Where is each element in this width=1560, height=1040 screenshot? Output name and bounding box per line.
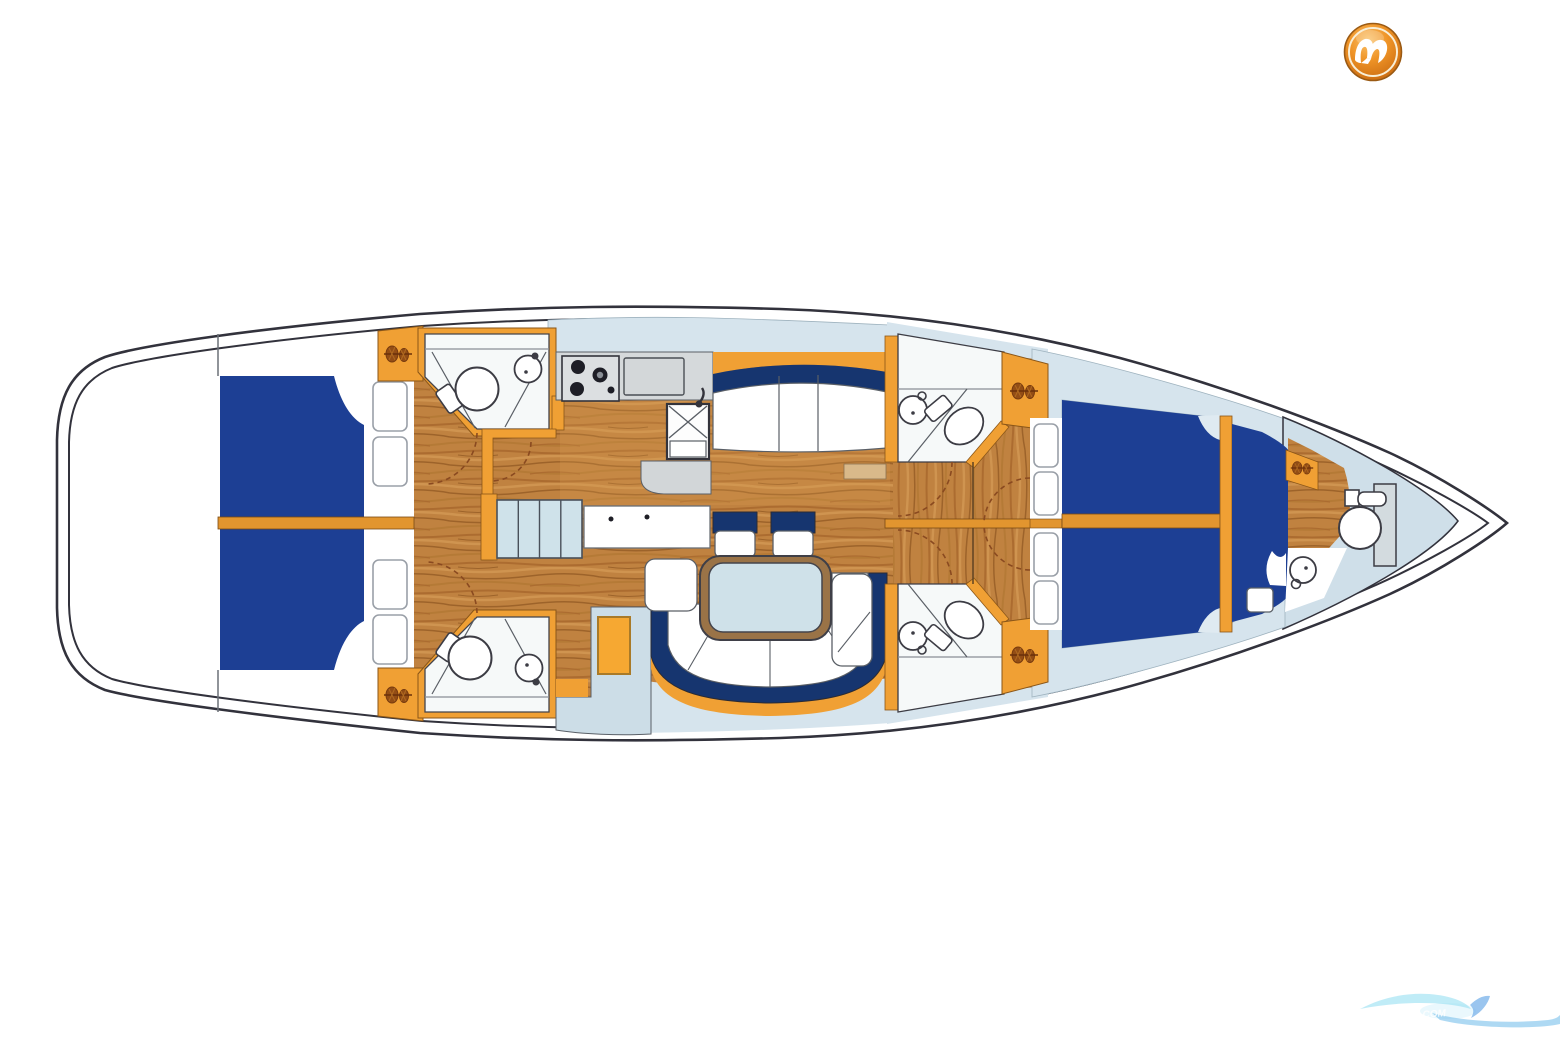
svg-text:.COM: .COM — [1419, 1008, 1446, 1021]
